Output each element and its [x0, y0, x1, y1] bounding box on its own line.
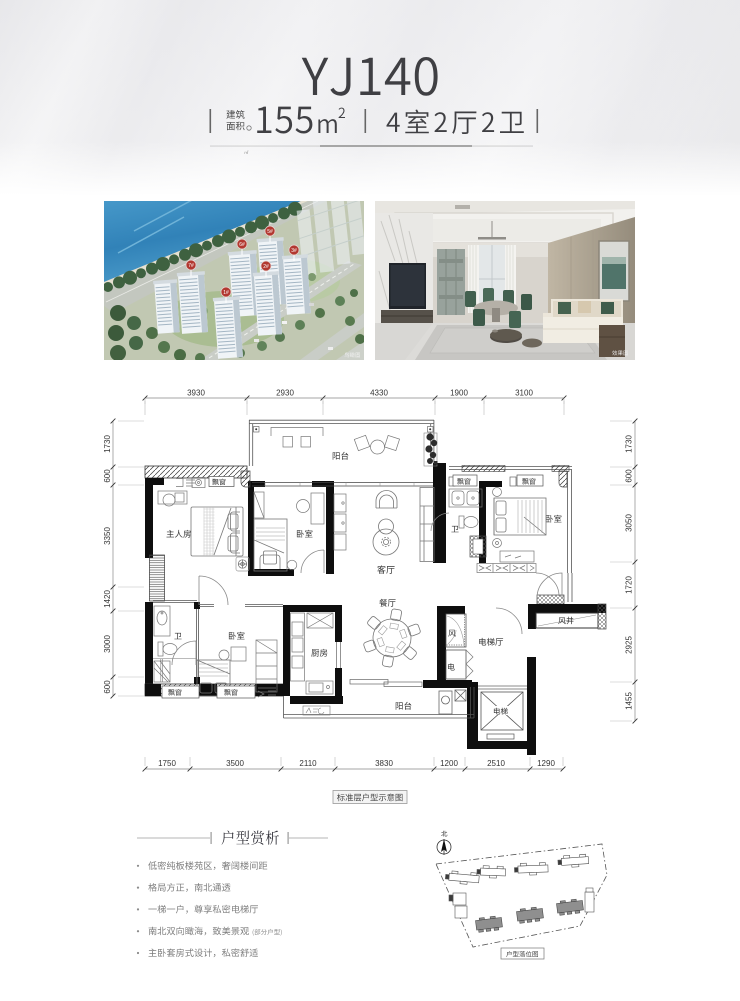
- svg-text:5#: 5#: [267, 229, 273, 235]
- svg-text:1730: 1730: [625, 435, 634, 453]
- svg-text:1720: 1720: [625, 576, 634, 594]
- svg-text:2925: 2925: [625, 636, 634, 654]
- svg-text:1900: 1900: [450, 389, 468, 398]
- svg-text:2110: 2110: [299, 759, 317, 768]
- svg-text:1750: 1750: [158, 759, 176, 768]
- svg-text:3100: 3100: [515, 389, 533, 398]
- svg-text:1420: 1420: [103, 590, 112, 608]
- svg-text:1200: 1200: [440, 759, 458, 768]
- svg-text:4330: 4330: [370, 389, 388, 398]
- svg-text:600: 600: [103, 469, 112, 483]
- svg-text:2930: 2930: [276, 389, 294, 398]
- svg-text:3350: 3350: [103, 527, 112, 545]
- svg-text:7#: 7#: [188, 263, 194, 269]
- svg-text:3000: 3000: [103, 635, 112, 653]
- svg-text:600: 600: [625, 469, 634, 483]
- svg-text:1290: 1290: [537, 759, 555, 768]
- svg-text:3830: 3830: [375, 759, 393, 768]
- svg-text:1#: 1#: [223, 290, 229, 296]
- svg-text:3#: 3#: [291, 248, 297, 254]
- svg-text:600: 600: [103, 680, 112, 694]
- svg-text:2#: 2#: [263, 264, 269, 270]
- svg-text:2510: 2510: [487, 759, 505, 768]
- svg-text:3500: 3500: [226, 759, 244, 768]
- svg-text:3050: 3050: [625, 514, 634, 532]
- svg-text:3930: 3930: [187, 389, 205, 398]
- svg-text:1730: 1730: [103, 435, 112, 453]
- svg-text:1455: 1455: [625, 692, 634, 710]
- svg-text:6#: 6#: [239, 242, 245, 248]
